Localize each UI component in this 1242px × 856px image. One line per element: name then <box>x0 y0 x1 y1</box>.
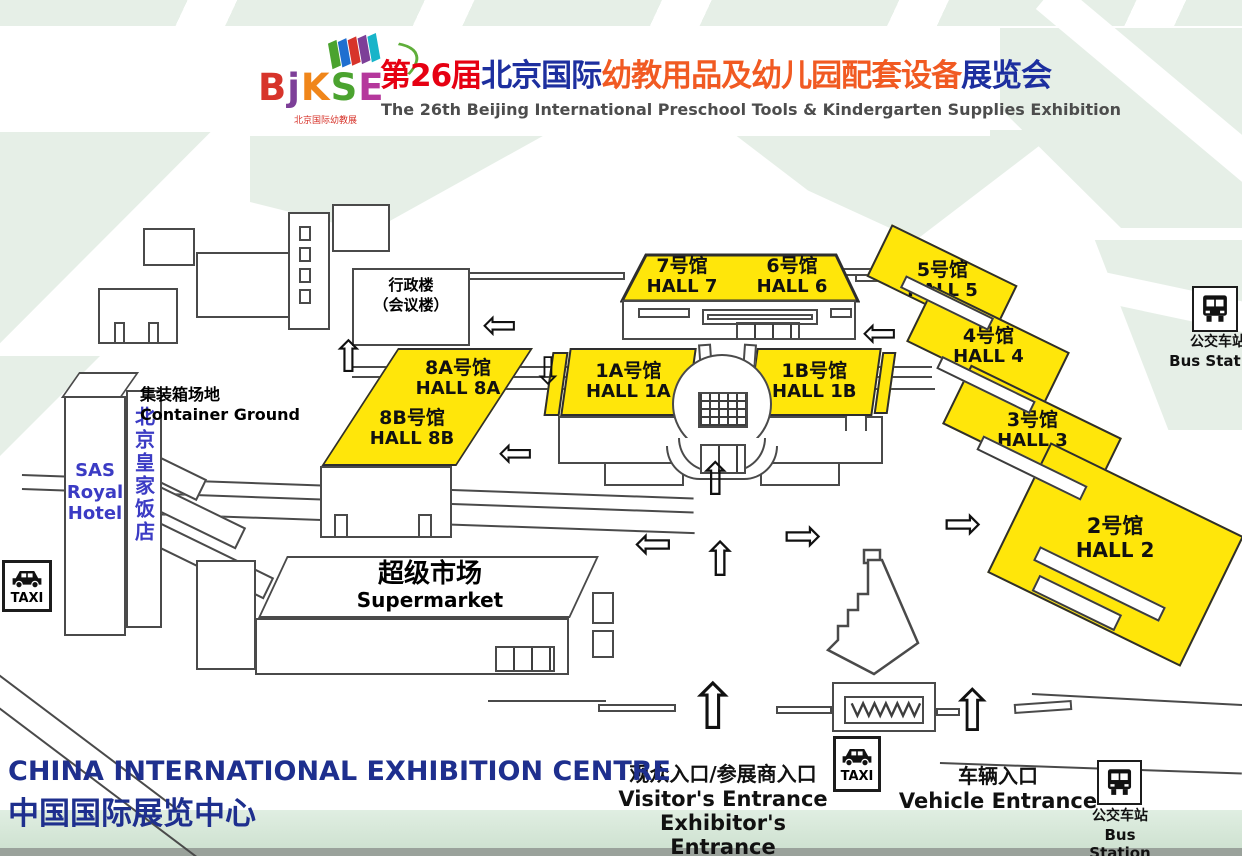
direction-arrow-right: ⇨ <box>944 500 983 546</box>
taxi-sign: TAXI <box>833 736 881 792</box>
title-part: 展览会 <box>961 58 1051 94</box>
taxi-label: TAXI <box>11 591 44 606</box>
bjkse-logo: BjKSE <box>258 66 385 109</box>
road-segment <box>1014 700 1073 714</box>
car-icon <box>7 567 47 591</box>
logo-letter: j <box>287 66 301 109</box>
admin-tower <box>288 212 330 330</box>
bus-station-label: 公交车站 Bus Station <box>1072 808 1168 856</box>
admin-building <box>98 288 178 344</box>
direction-arrow-right: ⇨ <box>784 512 823 558</box>
title-part: 第26届 <box>380 58 481 94</box>
exhibitor-entrance-en: Exhibitor's Entrance <box>608 811 838 856</box>
admin-building <box>332 204 390 252</box>
hall-8b-label: 8B号馆 HALL 8B <box>352 408 472 449</box>
vehicle-entrance-cn: 车辆入口 <box>898 760 1098 789</box>
direction-arrow-left: ⇦ <box>862 312 897 354</box>
vehicle-entrance-label: 车辆入口 Vehicle Entrance <box>898 760 1098 813</box>
title-part: 北京国际 <box>481 58 601 94</box>
visitor-entrance-en: Visitor's Entrance <box>608 787 838 811</box>
hotel-name-en: SAS Royal Hotel <box>66 398 124 525</box>
container-ground-en: Container Ground <box>140 405 300 425</box>
container-ground-label: 集装箱场地 Container Ground <box>140 385 300 425</box>
hall-1-step <box>760 462 840 486</box>
vehicle-entrance-arrow: ⇧ <box>948 682 997 740</box>
bus-station-label: 公交车站 Bus Station <box>1168 334 1242 370</box>
admin-label-cn2: （会议楼） <box>373 296 448 314</box>
hotel-name-cn: 北京皇家饭店 <box>130 406 159 626</box>
title-part: 幼教用品及幼儿园配套设备 <box>601 58 961 94</box>
exhibition-title: 第26届北京国际幼教用品及幼儿园配套设备展览会 <box>380 50 1051 95</box>
hall-1a-cn: 1A号馆 <box>586 361 671 382</box>
hall-2-en: HALL 2 <box>1076 538 1155 560</box>
supermarket-en: Supermarket <box>330 589 530 611</box>
logo-letter: K <box>301 66 331 109</box>
hall-6-en: HALL 6 <box>742 277 842 297</box>
hall-2: 2号馆 HALL 2 <box>987 442 1242 667</box>
bus-icon <box>1103 766 1136 799</box>
road-line <box>488 700 606 702</box>
hall-8b-cn: 8B号馆 <box>352 408 472 429</box>
hall-2-cn: 2号馆 <box>1076 515 1155 539</box>
gate-turnstile-icon <box>846 698 922 722</box>
hotel-tower: SAS Royal Hotel <box>64 396 126 636</box>
hall-6-label: 6号馆 HALL 6 <box>742 256 842 297</box>
hall-8a-cn: 8A号馆 <box>398 358 518 379</box>
exhibition-subtitle: The 26th Beijing International Preschool… <box>381 100 1121 119</box>
logo-tagline: 北京国际幼教展 <box>294 113 357 126</box>
venue-name-en: CHINA INTERNATIONAL EXHIBITION CENTRE <box>8 756 671 787</box>
admin-label-cn: 行政楼 <box>388 276 433 294</box>
small-structure <box>592 630 614 658</box>
direction-arrow-up: ⇧ <box>700 536 740 584</box>
direction-arrow-down: ⇩ <box>532 352 564 390</box>
bus-station-sign <box>1097 760 1142 805</box>
hall-8a-label: 8A号馆 HALL 8A <box>398 358 518 399</box>
car-icon <box>838 745 876 769</box>
direction-arrow-up: ⇧ <box>696 456 735 502</box>
hall-6-cn: 6号馆 <box>742 256 842 277</box>
hall-7-6-facade <box>622 300 856 340</box>
hall-7-label: 7号馆 HALL 7 <box>632 256 732 297</box>
taxi-sign: TAXI <box>2 560 52 612</box>
supermarket-cn: 超级市场 <box>330 560 530 589</box>
direction-arrow-left: ⇦ <box>498 432 533 474</box>
hall-1b-en: HALL 1B <box>772 383 856 403</box>
direction-arrow-left: ⇦ <box>634 520 673 566</box>
hall-1a-en: HALL 1A <box>586 383 671 403</box>
hall-8-facade <box>320 466 452 538</box>
hall-7-cn: 7号馆 <box>632 256 732 277</box>
hall-8a-en: HALL 8A <box>398 379 518 399</box>
admin-building <box>143 228 195 266</box>
hall-1b-cn: 1B号馆 <box>772 361 856 382</box>
hotel-annex-base <box>196 560 256 670</box>
hall-8b-en: HALL 8B <box>352 429 472 449</box>
vehicle-entrance-en: Vehicle Entrance <box>898 789 1098 813</box>
bus-station-cn: 公交车站 <box>1168 334 1242 352</box>
hall-7-en: HALL 7 <box>632 277 732 297</box>
rotunda-window-grid <box>698 392 748 428</box>
road-segment <box>776 706 832 714</box>
hall-5-cn: 5号馆 <box>907 260 978 281</box>
hotel-tower-side: 北京皇家饭店 <box>126 390 162 628</box>
bus-station-en: Bus Station <box>1168 352 1242 371</box>
visitor-entrance-arrow: ⇧ <box>686 676 740 740</box>
stepped-structure <box>818 548 930 680</box>
hall-3-cn: 3号馆 <box>997 410 1068 431</box>
bus-station-en: Bus Station <box>1072 826 1168 856</box>
direction-arrow-left: ⇦ <box>482 304 517 346</box>
container-ground-cn: 集装箱场地 <box>140 385 300 405</box>
hall-4-en: HALL 4 <box>953 348 1024 368</box>
bus-station-sign <box>1192 286 1238 332</box>
logo-letter: B <box>258 66 287 109</box>
exhibition-map: BjKSE 北京国际幼教展 第26届北京国际幼教用品及幼儿园配套设备展览会 Th… <box>0 0 1242 856</box>
direction-arrow-up: ⇧ <box>330 336 367 380</box>
bus-icon <box>1198 292 1232 326</box>
venue-name-cn: 中国国际展览中心 <box>8 788 256 833</box>
road-segment <box>598 704 676 712</box>
small-structure <box>592 592 614 624</box>
vehicle-gate <box>832 682 936 732</box>
supermarket-label: 超级市场 Supermarket <box>330 560 530 611</box>
road-segment <box>455 272 625 280</box>
admin-conference-building: 行政楼 （会议楼） <box>352 268 470 346</box>
supermarket-facade <box>255 618 569 675</box>
logo-letter: S <box>331 66 359 109</box>
green-area <box>700 130 1060 240</box>
taxi-label: TAXI <box>841 769 874 784</box>
